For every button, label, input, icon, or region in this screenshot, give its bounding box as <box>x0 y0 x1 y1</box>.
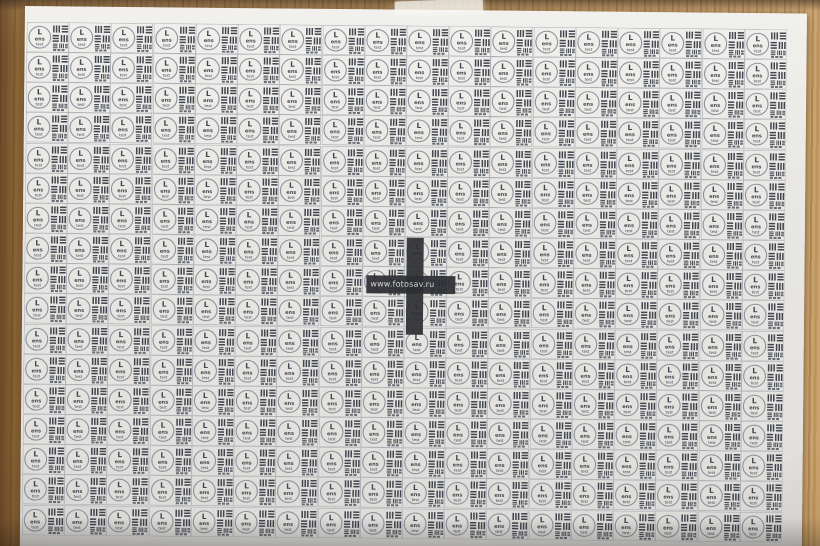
svg-text:L: L <box>584 274 589 283</box>
lens-test-cell: Lenstest <box>700 209 743 240</box>
svg-text:L: L <box>373 212 378 221</box>
lens-test-cell: Lenstest <box>317 507 360 538</box>
svg-text:L: L <box>585 153 590 162</box>
svg-text:L: L <box>374 151 379 160</box>
lens-test-cell: Lenstest <box>150 385 193 416</box>
svg-text:L: L <box>120 209 125 218</box>
svg-text:test: test <box>627 47 635 52</box>
svg-text:L: L <box>543 123 548 132</box>
lens-test-cell: Lenstest <box>234 416 277 447</box>
lens-test-cell: Lenstest <box>191 446 234 477</box>
lens-test-cell: Lenstest <box>67 173 110 204</box>
svg-text:test: test <box>77 223 85 228</box>
svg-text:L: L <box>121 89 126 98</box>
lens-test-cell: Lenstest <box>701 89 744 120</box>
lens-test-cell: Lenstest <box>276 386 319 417</box>
lens-test-cell: Lenstest <box>193 325 236 356</box>
lens-test-cell: Lenstest <box>448 86 491 117</box>
lens-test-cell: Lenstest <box>658 239 701 270</box>
lens-test-cell: Lenstest <box>236 145 279 176</box>
svg-text:test: test <box>162 133 170 138</box>
lens-test-cell: Lenstest <box>529 449 572 480</box>
lens-test-cell: Lenstest <box>660 58 703 89</box>
svg-text:test: test <box>710 169 718 174</box>
svg-text:L: L <box>205 180 210 189</box>
lens-test-cell: Lenstest <box>490 147 533 178</box>
lens-test-cell: Lenstest <box>616 148 659 179</box>
lens-test-cell: Lenstest <box>236 205 279 236</box>
svg-text:L: L <box>627 214 632 223</box>
lens-test-cell: Lenstest <box>575 57 618 88</box>
lens-test-cell: Lenstest <box>405 207 448 238</box>
lens-test-cell: Lenstest <box>64 505 107 536</box>
svg-text:test: test <box>330 225 338 230</box>
svg-text:L: L <box>628 33 633 42</box>
svg-text:test: test <box>160 314 168 319</box>
svg-text:test: test <box>626 168 634 173</box>
svg-text:L: L <box>627 154 632 163</box>
lens-test-cell: Lenstest <box>65 445 108 476</box>
svg-text:test: test <box>120 133 128 138</box>
svg-text:L: L <box>78 209 83 218</box>
lens-test-cell: Lenstest <box>110 174 153 205</box>
lens-test-cell: Lenstest <box>617 88 660 119</box>
svg-text:test: test <box>118 253 126 258</box>
svg-text:test: test <box>204 103 212 108</box>
lens-test-cell: Lenstest <box>444 478 487 509</box>
lens-test-cell: Lenstest <box>743 210 786 241</box>
svg-text:test: test <box>331 105 339 110</box>
lens-test-cell: Lenstest <box>618 28 661 59</box>
lens-test-cell: Lenstest <box>447 237 490 268</box>
lens-test-cell: Lenstest <box>193 235 236 266</box>
lens-test-cell: Lenstest <box>614 359 657 390</box>
svg-text:L: L <box>163 149 168 158</box>
lens-test-cell: Lenstest <box>68 83 111 114</box>
svg-text:test: test <box>458 106 466 111</box>
svg-text:test: test <box>541 257 549 262</box>
svg-text:test: test <box>373 135 381 140</box>
lens-test-cell: Lenstest <box>402 448 445 479</box>
lens-test-cell: Lenstest <box>319 296 362 327</box>
calibration-cross-horizontal-bar: www.fotosav.ru <box>366 275 455 294</box>
svg-text:test: test <box>373 75 381 80</box>
lens-test-cell: Lenstest <box>488 298 531 329</box>
svg-text:test: test <box>584 137 592 142</box>
svg-text:test: test <box>163 43 171 48</box>
lens-test-cell: Lenstest <box>364 25 407 56</box>
svg-text:test: test <box>118 314 126 319</box>
svg-text:L: L <box>120 239 125 248</box>
svg-text:test: test <box>415 196 423 201</box>
lens-test-cell: Lenstest <box>533 57 576 88</box>
lens-test-cell: Lenstest <box>151 204 194 235</box>
lens-test-cell: Lenstest <box>486 509 529 540</box>
lens-test-cell: Lenstest <box>235 265 278 296</box>
svg-text:L: L <box>712 94 717 103</box>
lens-test-cell: Lenstest <box>658 179 701 210</box>
lens-test-cell: Lenstest <box>744 89 787 120</box>
svg-text:test: test <box>35 102 43 107</box>
lens-test-cell: Lenstest <box>25 233 68 264</box>
svg-text:L: L <box>36 148 41 157</box>
svg-text:L: L <box>500 183 505 192</box>
svg-text:L: L <box>248 60 253 69</box>
svg-text:L: L <box>161 300 166 309</box>
svg-text:test: test <box>247 74 255 79</box>
lens-test-cell: Lenstest <box>279 145 322 176</box>
lens-test-cell: Lenstest <box>193 265 236 296</box>
lens-test-cell: Lenstest <box>699 360 742 391</box>
svg-text:test: test <box>542 167 550 172</box>
svg-text:test: test <box>626 198 634 203</box>
svg-text:L: L <box>289 181 294 190</box>
svg-text:test: test <box>247 104 255 109</box>
lens-test-cell: Lenstest <box>741 391 784 422</box>
svg-text:L: L <box>290 150 295 159</box>
lens-test-cell: Lenstest <box>195 24 238 55</box>
lens-test-cell: Lenstest <box>447 177 490 208</box>
svg-text:test: test <box>118 283 126 288</box>
lens-test-cell: Lenstest <box>532 148 575 179</box>
lens-test-cell: Lenstest <box>740 511 783 542</box>
lens-test-cell: Lenstest <box>321 115 364 146</box>
svg-text:test: test <box>288 164 296 169</box>
svg-text:L: L <box>204 300 209 309</box>
svg-text:test: test <box>712 48 720 53</box>
lens-test-cell: Lenstest <box>65 414 108 445</box>
svg-text:test: test <box>710 199 718 204</box>
svg-text:test: test <box>289 74 297 79</box>
lens-test-cell: Lenstest <box>491 57 534 88</box>
lens-test-cell: Lenstest <box>530 389 573 420</box>
lens-test-cell: Lenstest <box>573 329 616 360</box>
svg-text:test: test <box>498 287 506 292</box>
svg-text:test: test <box>499 197 507 202</box>
svg-text:L: L <box>543 153 548 162</box>
svg-text:L: L <box>205 210 210 219</box>
lens-test-cell: Lenstest <box>529 479 572 510</box>
svg-text:L: L <box>586 33 591 42</box>
svg-text:L: L <box>754 155 759 164</box>
svg-text:test: test <box>372 195 380 200</box>
svg-text:L: L <box>332 91 337 100</box>
svg-text:test: test <box>330 195 338 200</box>
lens-test-cell: Lenstest <box>446 328 489 359</box>
svg-text:test: test <box>245 224 253 229</box>
lens-test-cell: Lenstest <box>614 450 657 481</box>
svg-text:test: test <box>667 259 675 264</box>
svg-text:L: L <box>79 58 84 67</box>
svg-text:L: L <box>374 181 379 190</box>
svg-text:L: L <box>416 212 421 221</box>
svg-text:test: test <box>626 138 634 143</box>
lens-test-cell: Lenstest <box>657 330 700 361</box>
svg-text:L: L <box>333 60 338 69</box>
lens-test-cell: Lenstest <box>448 147 491 178</box>
svg-text:test: test <box>332 44 340 49</box>
svg-text:L: L <box>586 63 591 72</box>
lens-test-cell: Lenstest <box>195 84 238 115</box>
lens-test-cell: Lenstest <box>403 418 446 449</box>
svg-text:test: test <box>751 290 759 295</box>
lens-test-cell: Lenstest <box>149 506 192 537</box>
lens-test-cell: Lenstest <box>361 387 404 418</box>
svg-text:test: test <box>709 289 717 294</box>
svg-text:L: L <box>249 29 254 38</box>
svg-text:L: L <box>163 179 168 188</box>
svg-text:test: test <box>500 46 508 51</box>
lens-test-cell: Lenstest <box>701 149 744 180</box>
lens-test-cell: Lenstest <box>571 449 614 480</box>
svg-text:L: L <box>331 211 336 220</box>
lens-test-cell: Lenstest <box>702 29 745 60</box>
svg-text:test: test <box>668 228 676 233</box>
svg-text:L: L <box>670 94 675 103</box>
lens-test-cell: Lenstest <box>360 447 403 478</box>
svg-text:L: L <box>586 93 591 102</box>
lens-test-cell: Lenstest <box>277 356 320 387</box>
svg-text:L: L <box>502 32 507 41</box>
svg-text:test: test <box>161 254 169 259</box>
svg-text:L: L <box>331 181 336 190</box>
svg-text:test: test <box>203 194 211 199</box>
svg-text:L: L <box>458 212 463 221</box>
watermark-url-label: www.fotosav.ru <box>370 275 434 294</box>
lens-test-cell: Lenstest <box>235 295 278 326</box>
svg-text:test: test <box>204 164 212 169</box>
svg-text:L: L <box>417 121 422 130</box>
lens-test-cell: Lenstest <box>487 479 530 510</box>
svg-text:L: L <box>122 58 127 67</box>
lens-test-cell: Lenstest <box>363 206 406 237</box>
lens-test-cell: Lenstest <box>615 329 658 360</box>
lens-test-cell: Lenstest <box>740 481 783 512</box>
lens-test-cell: Lenstest <box>194 144 237 175</box>
svg-text:L: L <box>416 182 421 191</box>
svg-text:L: L <box>288 271 293 280</box>
svg-text:test: test <box>456 257 464 262</box>
svg-text:test: test <box>245 285 253 290</box>
svg-text:test: test <box>76 283 84 288</box>
svg-text:test: test <box>205 73 213 78</box>
lens-test-cell: Lenstest <box>616 178 659 209</box>
lens-test-cell: Lenstest <box>66 324 109 355</box>
lens-test-cell: Lenstest <box>237 115 280 146</box>
svg-text:L: L <box>627 184 632 193</box>
svg-text:test: test <box>76 253 84 258</box>
lens-test-cell: Lenstest <box>743 150 786 181</box>
svg-text:test: test <box>752 229 760 234</box>
lens-test-cell: Lenstest <box>701 179 744 210</box>
svg-text:L: L <box>544 32 549 41</box>
svg-text:L: L <box>670 64 675 73</box>
lens-test-cell: Lenstest <box>192 355 235 386</box>
lens-test-cell: Lenstest <box>533 87 576 118</box>
lens-test-cell: Lenstest <box>233 476 276 507</box>
svg-text:L: L <box>331 241 336 250</box>
svg-text:test: test <box>35 192 43 197</box>
svg-text:test: test <box>415 105 423 110</box>
lens-test-cell: Lenstest <box>744 59 787 90</box>
svg-text:test: test <box>330 165 338 170</box>
lens-test-cell: Lenstest <box>615 269 658 300</box>
svg-text:test: test <box>542 137 550 142</box>
lens-test-cell: Lenstest <box>233 507 276 538</box>
lens-test-cell: Lenstest <box>701 119 744 150</box>
lens-test-cell: Lenstest <box>363 176 406 207</box>
lens-test-cell: Lenstest <box>403 388 446 419</box>
lens-test-cell: Lenstest <box>406 86 449 117</box>
svg-text:L: L <box>670 154 675 163</box>
svg-text:L: L <box>711 245 716 254</box>
svg-text:L: L <box>36 208 41 217</box>
lens-test-cell: Lenstest <box>194 174 237 205</box>
lens-test-cell: Lenstest <box>22 474 65 505</box>
lens-test-cell: Lenstest <box>321 145 364 176</box>
lens-test-cell: Lenstest <box>278 266 321 297</box>
svg-text:test: test <box>753 109 761 114</box>
lens-test-cell: Lenstest <box>362 297 405 328</box>
svg-text:L: L <box>417 91 422 100</box>
svg-text:L: L <box>543 183 548 192</box>
lens-test-cell: Lenstest <box>108 324 151 355</box>
svg-text:L: L <box>164 59 169 68</box>
svg-text:L: L <box>669 245 674 254</box>
lens-test-cell: Lenstest <box>68 53 111 84</box>
lens-test-cell: Lenstest <box>405 176 448 207</box>
lens-test-cell: Lenstest <box>403 357 446 388</box>
svg-text:test: test <box>583 197 591 202</box>
svg-text:test: test <box>373 165 381 170</box>
svg-text:test: test <box>415 166 423 171</box>
lens-test-cell: Lenstest <box>195 114 238 145</box>
lens-test-cell: Lenstest <box>195 54 238 85</box>
svg-text:test: test <box>583 258 591 263</box>
svg-text:L: L <box>80 28 85 37</box>
lens-test-cell: Lenstest <box>280 55 323 86</box>
svg-text:L: L <box>417 31 422 40</box>
svg-text:test: test <box>585 47 593 52</box>
lens-test-cell: Lenstest <box>361 357 404 388</box>
lens-test-cell: Lenstest <box>24 263 67 294</box>
lens-test-cell: Lenstest <box>402 478 445 509</box>
svg-text:L: L <box>289 211 294 220</box>
lens-test-cell: Lenstest <box>152 114 195 145</box>
lens-test-cell: Lenstest <box>532 178 575 209</box>
svg-text:test: test <box>36 41 44 46</box>
lens-test-cell: Lenstest <box>699 300 742 331</box>
svg-text:test: test <box>458 45 466 50</box>
lens-test-cell: Lenstest <box>407 26 450 57</box>
svg-text:L: L <box>121 119 126 128</box>
svg-text:L: L <box>501 92 506 101</box>
svg-text:test: test <box>584 167 592 172</box>
lens-test-cell: Lenstest <box>23 354 66 385</box>
lens-test-cell: Lenstest <box>276 477 319 508</box>
svg-text:test: test <box>583 288 591 293</box>
svg-text:test: test <box>541 227 549 232</box>
svg-text:L: L <box>205 150 210 159</box>
lens-test-cell: Lenstest <box>23 384 66 415</box>
lens-test-cell: Lenstest <box>320 266 363 297</box>
lens-test-cell: Lenstest <box>743 119 786 150</box>
lens-test-cell: Lenstest <box>26 82 69 113</box>
svg-text:test: test <box>34 222 42 227</box>
svg-text:test: test <box>246 134 254 139</box>
lens-test-cell: Lenstest <box>153 53 196 84</box>
svg-text:L: L <box>585 214 590 223</box>
svg-text:test: test <box>625 258 633 263</box>
svg-text:L: L <box>713 34 718 43</box>
lens-test-cell: Lenstest <box>532 117 575 148</box>
svg-text:L: L <box>458 152 463 161</box>
lens-test-cell: Lenstest <box>575 118 618 149</box>
svg-text:L: L <box>375 31 380 40</box>
svg-text:L: L <box>459 92 464 101</box>
svg-text:test: test <box>668 198 676 203</box>
svg-text:L: L <box>332 151 337 160</box>
svg-text:L: L <box>753 215 758 224</box>
lens-test-cell: Lenstest <box>741 421 784 452</box>
svg-text:L: L <box>374 121 379 130</box>
lens-test-cell: Lenstest <box>150 355 193 386</box>
lens-test-cell: Lenstest <box>615 299 658 330</box>
lens-test-cell: Lenstest <box>614 420 657 451</box>
lens-test-cell: Lenstest <box>574 148 617 179</box>
svg-text:L: L <box>162 270 167 279</box>
svg-text:L: L <box>204 270 209 279</box>
lens-test-cell: Lenstest <box>488 358 531 389</box>
svg-text:L: L <box>291 30 296 39</box>
svg-text:test: test <box>203 254 211 259</box>
svg-text:L: L <box>671 33 676 42</box>
svg-text:test: test <box>373 105 381 110</box>
lens-test-cell: Lenstest <box>110 83 153 114</box>
svg-text:L: L <box>246 240 251 249</box>
svg-text:L: L <box>162 210 167 219</box>
lens-test-cell: Lenstest <box>447 207 490 238</box>
lens-test-cell: Lenstest <box>67 234 110 265</box>
lens-test-cell: Lenstest <box>107 415 150 446</box>
svg-text:L: L <box>668 275 673 284</box>
lens-test-cell: Lenstest <box>572 419 615 450</box>
lens-test-cell: Lenstest <box>744 29 787 60</box>
lens-test-cell: Lenstest <box>529 419 572 450</box>
lens-test-cell: Lenstest <box>449 26 492 57</box>
lens-test-cell: Lenstest <box>234 446 277 477</box>
lens-test-cell: Lenstest <box>26 52 69 83</box>
svg-text:test: test <box>667 289 675 294</box>
svg-text:test: test <box>499 227 507 232</box>
svg-text:L: L <box>753 245 758 254</box>
lens-test-cell: Lenstest <box>68 143 111 174</box>
svg-text:L: L <box>501 152 506 161</box>
svg-text:test: test <box>289 44 297 49</box>
lens-test-cell: Lenstest <box>405 146 448 177</box>
lens-test-cell: Lenstest <box>319 387 362 418</box>
lens-test-cell: Lenstest <box>234 356 277 387</box>
lens-test-cell: Lenstest <box>742 300 785 331</box>
lens-test-cell: Lenstest <box>149 445 192 476</box>
lens-test-cell: Lenstest <box>699 390 742 421</box>
svg-text:L: L <box>626 274 631 283</box>
lens-test-cell: Lenstest <box>364 86 407 117</box>
svg-text:L: L <box>78 239 83 248</box>
lens-test-cell: Lenstest <box>236 175 279 206</box>
lens-test-cell: Lenstest <box>445 388 488 419</box>
lens-test-cell: Lenstest <box>616 239 659 270</box>
